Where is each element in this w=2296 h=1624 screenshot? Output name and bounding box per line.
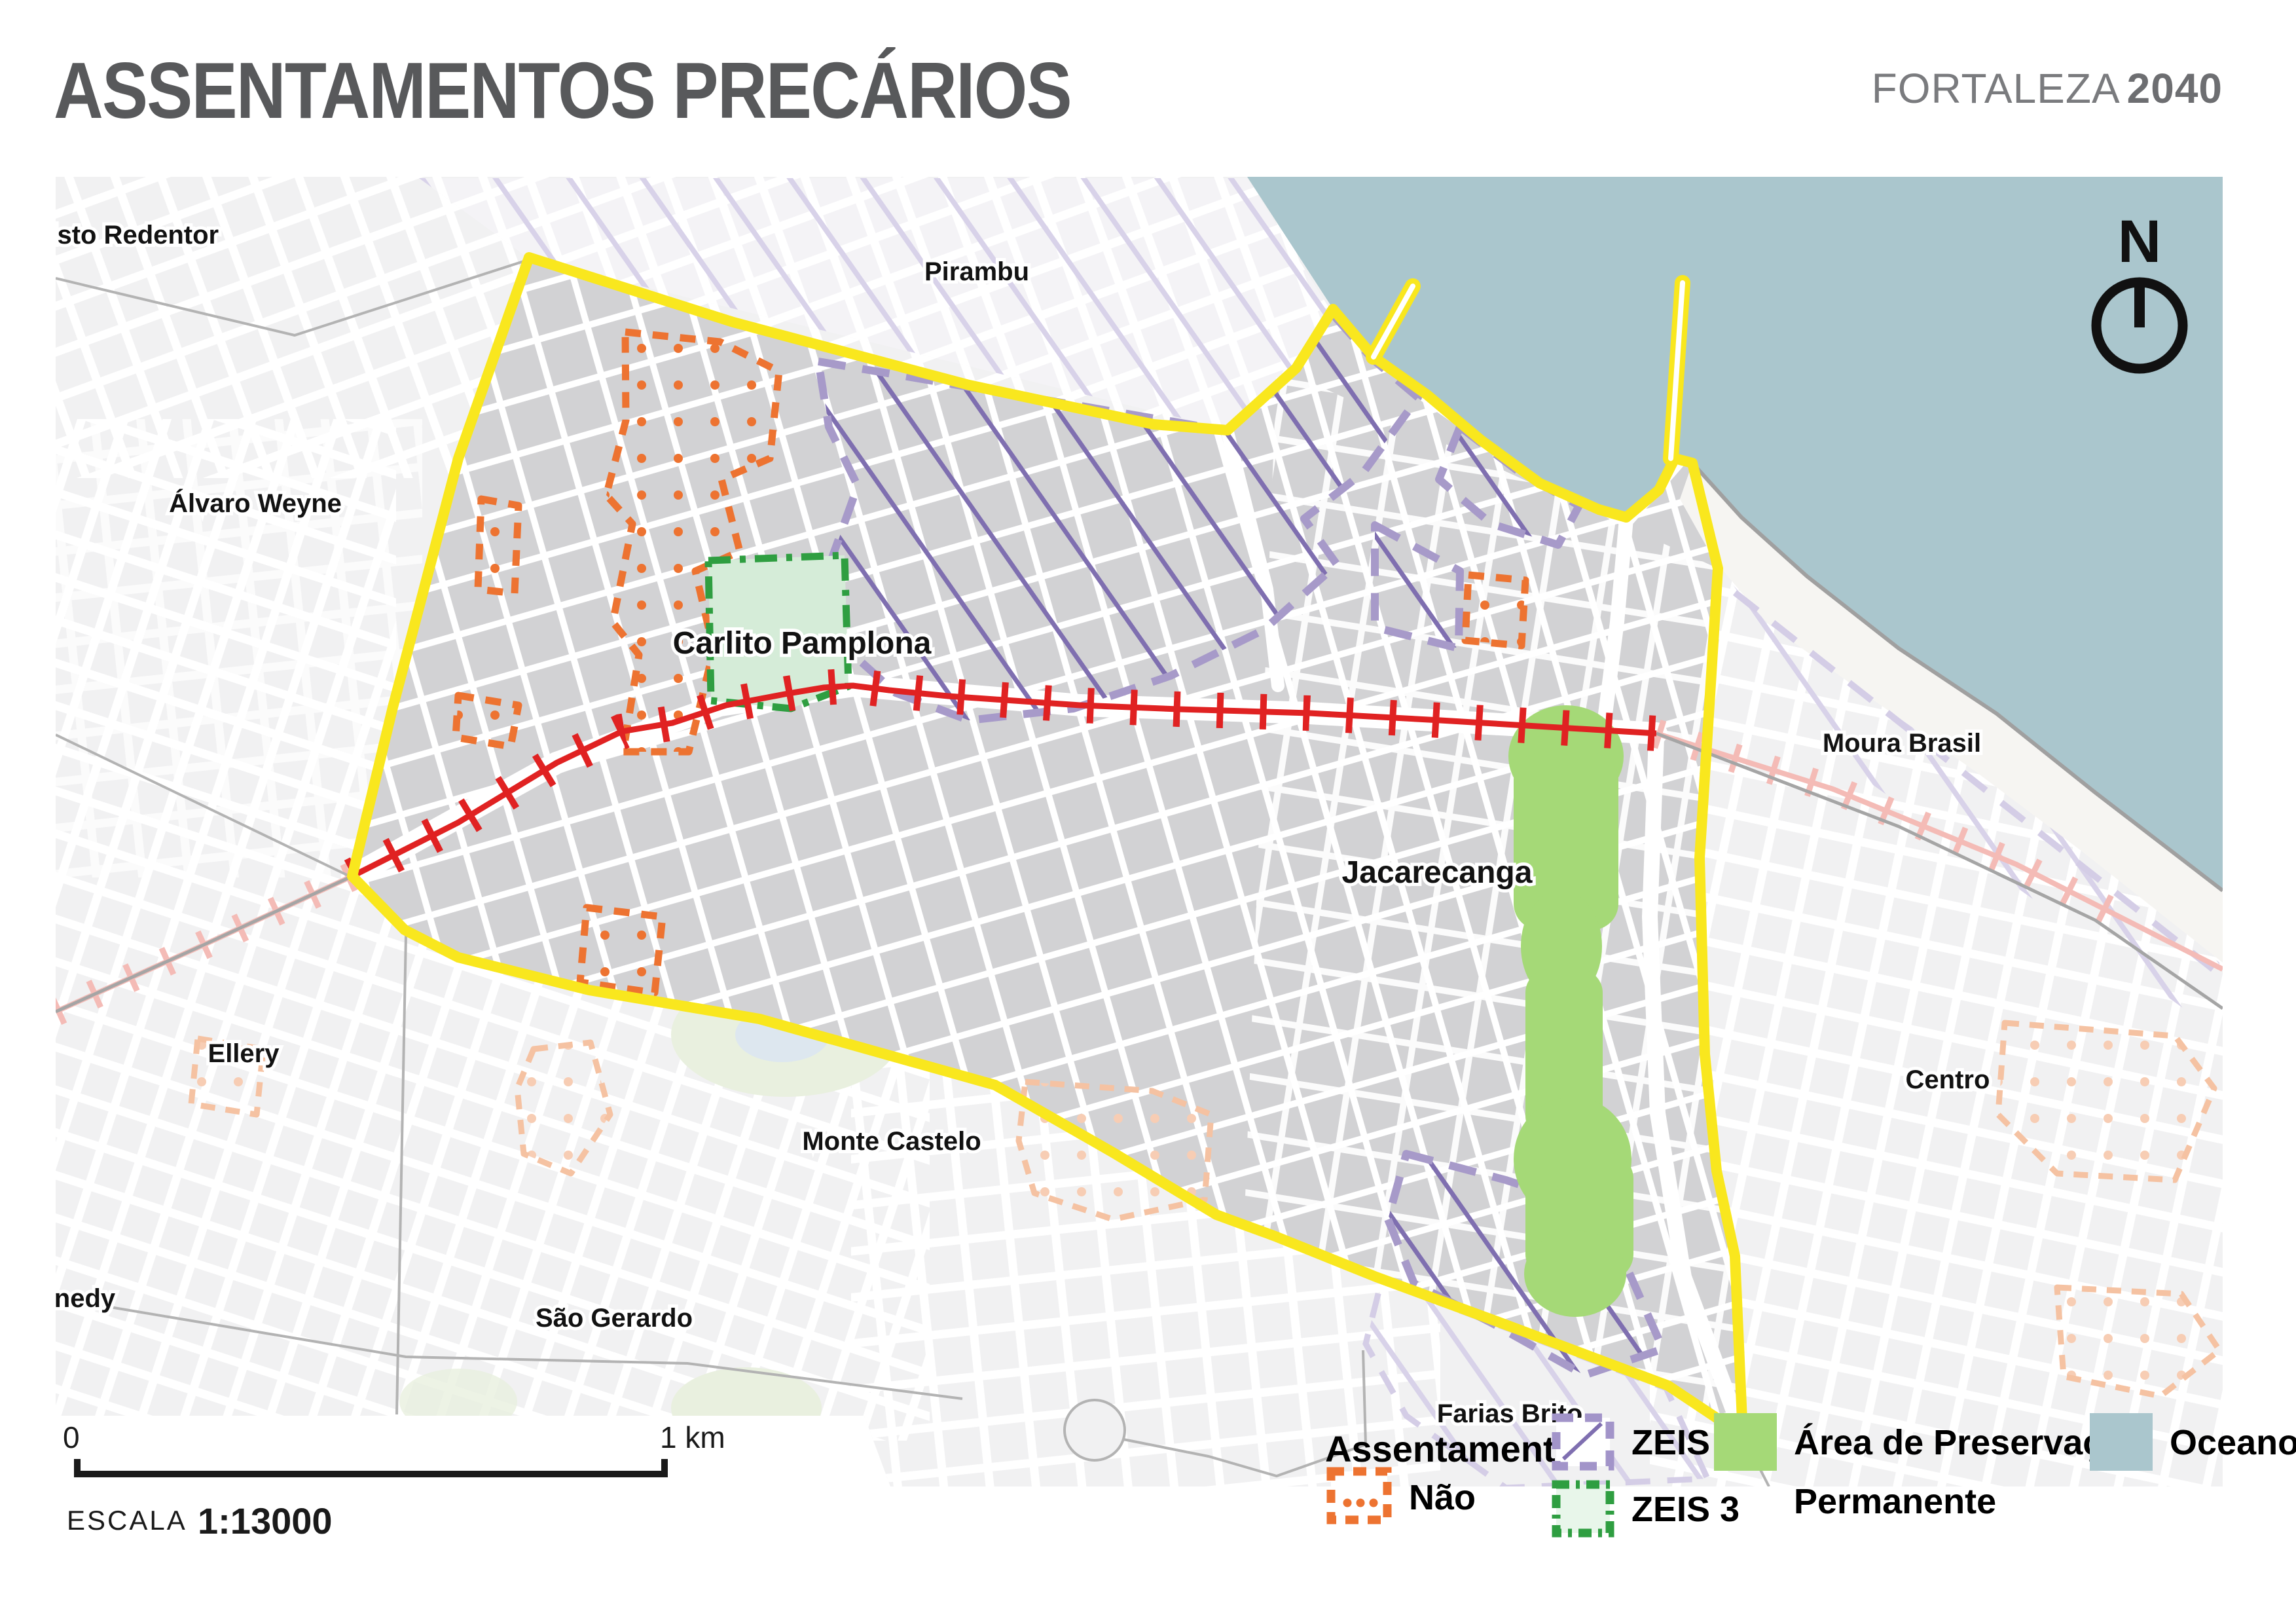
legend-zeis3-label: ZEIS 3 <box>1631 1489 1740 1530</box>
zeis3-swatch-icon <box>1552 1480 1614 1538</box>
scale-escala-label: ESCALA <box>67 1505 187 1536</box>
oceano-swatch-icon <box>2090 1413 2153 1471</box>
scale-start-label: 0 <box>63 1420 80 1455</box>
north-label: N <box>2118 208 2161 275</box>
page: ASSENTAMENTOS PRECÁRIOS FORTALEZA2040 <box>0 0 2296 1624</box>
scale-ratio: 1:13000 <box>198 1500 333 1542</box>
map-label-jacarecanga: Jacarecanga <box>1342 855 1533 890</box>
map-label-carlito-pamplona: Carlito Pamplona <box>673 626 932 661</box>
scale-tick-left <box>74 1459 81 1473</box>
map-label-pirambu: Pirambu <box>924 257 1029 286</box>
map-label-cristo-redentor: Cristo Redentor <box>21 221 219 249</box>
legend-preservation-line2: Permanente <box>1794 1472 2143 1531</box>
legend-nao-label: Não <box>1409 1477 1476 1518</box>
map-label-sao-gerardo: São Gerardo <box>536 1304 693 1333</box>
preservation-swatch-icon <box>1714 1413 1777 1471</box>
scale-end-label: 1 km <box>660 1420 725 1455</box>
zeis1-swatch-icon <box>1552 1413 1614 1471</box>
map-label-moura-brasil: Moura Brasil <box>1823 729 1981 758</box>
legend-oceano-label: Oceano <box>2170 1422 2296 1463</box>
map-canvas: Cristo RedentorPirambuÁlvaro WeyneCarlit… <box>0 0 2296 1624</box>
map-label-monte-castelo: Monte Castelo <box>802 1127 981 1156</box>
scale-tick-right <box>661 1459 668 1473</box>
nao-swatch-icon <box>1326 1467 1392 1524</box>
map-label-presidente-kennedy: ente Kennedy <box>0 1284 116 1313</box>
scale-bar-line <box>74 1471 668 1477</box>
map-label-ellery: Ellery <box>208 1039 280 1068</box>
map-label-centro: Centro <box>1906 1065 1990 1094</box>
map-label-alvaro-weyne: Álvaro Weyne <box>169 489 342 518</box>
